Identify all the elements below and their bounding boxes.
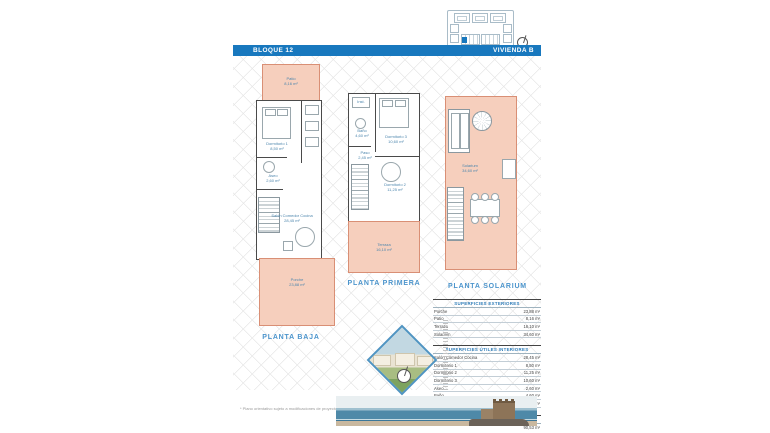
room-label-dormitorio3: Dormitorio 3 10,60 m² xyxy=(381,134,411,144)
chair-icon xyxy=(481,216,489,224)
kitchen-appliance-icon xyxy=(305,105,319,115)
pillow-icon xyxy=(265,109,276,116)
table-row: Dormitorio 310,60 m² xyxy=(433,377,541,385)
floorplan-sheet: BLOQUE 12 VIVIENDA B Patio 8,16 m² Dormi… xyxy=(0,0,770,433)
room-porche: Porche 23,88 m² xyxy=(259,258,335,326)
row-value: 8,50 m² xyxy=(526,363,540,368)
row-label: Porche xyxy=(434,309,447,314)
plan-planta-baja: Patio 8,16 m² Dormitorio 1 8,50 m² Aseo … xyxy=(246,62,336,347)
room-label-porche: Porche 23,88 m² xyxy=(260,277,334,287)
unit-label: VIVIENDA B xyxy=(493,47,541,54)
lounger-area xyxy=(448,109,470,153)
room-area: 8,16 m² xyxy=(263,81,319,86)
keyplan-block xyxy=(490,13,506,23)
kitchen-appliance-icon xyxy=(305,137,319,147)
building-shape xyxy=(373,355,391,366)
kitchen-appliance-icon xyxy=(305,121,319,131)
room-area: 8,50 m² xyxy=(259,146,295,151)
title-bar: BLOQUE 12 VIVIENDA B xyxy=(233,45,541,56)
plan-planta-primera: Inst. Baño 4,60 m² Dormitorio 3 10,60 m²… xyxy=(348,93,420,293)
keyplan-block xyxy=(503,24,512,33)
render-image xyxy=(367,325,438,396)
drawing-stamp xyxy=(443,318,448,390)
room-label-patio: Patio 8,16 m² xyxy=(263,76,319,86)
room-area: 16,10 m² xyxy=(349,247,419,252)
dining-table-icon xyxy=(295,227,315,247)
row-value: 28,45 m² xyxy=(523,355,540,360)
chair-icon xyxy=(471,193,479,201)
room-area: 11,25 m² xyxy=(379,187,411,192)
row-value: 2,60 m² xyxy=(526,386,540,391)
surfaces-interiores-header: SUPERFICIES ÚTILES INTERIORES xyxy=(433,345,541,354)
table-row: Patio8,16 m² xyxy=(433,316,541,324)
plan-title-solarium: PLANTA SOLARIUM xyxy=(440,283,535,290)
render-frame xyxy=(367,325,438,396)
dining-table-icon xyxy=(470,199,500,217)
pillow-icon xyxy=(382,100,393,107)
compass-needle xyxy=(523,35,526,43)
building-shape xyxy=(417,356,433,366)
room-label-inst: Inst. xyxy=(353,99,369,104)
surfaces-exteriores-header: SUPERFICIES EXTERIORES xyxy=(433,299,541,308)
room-name: Inst. xyxy=(353,99,369,104)
site-keyplan xyxy=(447,10,514,47)
room-area: 34,60 m² xyxy=(454,168,486,173)
stairs xyxy=(351,164,369,210)
plan-title-baja: PLANTA BAJA xyxy=(246,334,336,341)
table-row: Terraza16,10 m² xyxy=(433,323,541,331)
keyplan-block xyxy=(503,34,512,43)
keyplan-block-inner xyxy=(493,16,503,21)
room-area: 2,60 m² xyxy=(259,178,287,183)
room-solarium: Solarium 34,60 m² xyxy=(445,96,517,270)
room-area: 23,88 m² xyxy=(260,282,334,287)
lounger-icon xyxy=(460,113,469,149)
room-patio: Patio 8,16 m² xyxy=(262,64,320,102)
sink-icon xyxy=(263,161,275,173)
partition-wall xyxy=(257,157,287,158)
chair-icon xyxy=(491,216,499,224)
partition-wall xyxy=(375,94,376,152)
row-value: 16,10 m² xyxy=(523,324,540,329)
tower-battlements xyxy=(493,399,515,402)
room-label-terraza: Terraza 16,10 m² xyxy=(349,242,419,252)
ac-unit-icon xyxy=(502,159,516,179)
keyplan-block xyxy=(454,13,470,23)
keyplan-highlighted-unit xyxy=(462,37,467,43)
partition-wall xyxy=(349,146,371,147)
plan-planta-solarium: Solarium 34,60 m² PLANTA SOLARIUM xyxy=(440,88,535,293)
lounger-icon xyxy=(451,113,460,149)
keyplan-block-inner xyxy=(475,16,485,21)
table-row: Solarium34,60 m² xyxy=(433,331,541,339)
compass-icon xyxy=(397,369,411,383)
stairs xyxy=(447,187,464,241)
partition-wall xyxy=(301,101,302,163)
bed-icon xyxy=(379,98,409,128)
room-area: 4,60 m² xyxy=(351,133,373,138)
table-icon xyxy=(381,162,401,182)
pillow-icon xyxy=(395,100,406,107)
room-label-dormitorio2: Dormitorio 2 11,25 m² xyxy=(379,182,411,192)
partition-wall xyxy=(257,189,283,190)
block-label: BLOQUE 12 xyxy=(233,47,293,54)
chair-icon xyxy=(481,193,489,201)
keyplan-block xyxy=(450,34,459,43)
room-terraza: Terraza 16,10 m² xyxy=(348,221,420,273)
room-label-aseo: Aseo 2,60 m² xyxy=(259,173,287,183)
unit-outline-primera: Inst. Baño 4,60 m² Dormitorio 3 10,60 m²… xyxy=(348,93,420,223)
spiral-stair-icon xyxy=(472,111,492,131)
keyplan-block xyxy=(450,24,459,33)
row-value: 10,60 m² xyxy=(523,378,540,383)
room-label-solarium: Solarium 34,60 m² xyxy=(454,163,486,173)
building-shape xyxy=(395,353,415,366)
keyplan-block-row xyxy=(481,34,500,45)
room-label-salon: Salón Comedor Cocina 28,45 m² xyxy=(269,213,315,223)
keyplan-block-inner xyxy=(457,16,467,21)
table-row: Dormitorio 211,25 m² xyxy=(433,370,541,378)
row-value: 23,88 m² xyxy=(523,309,540,314)
room-area: 28,45 m² xyxy=(269,218,315,223)
plan-title-primera: PLANTA PRIMERA xyxy=(336,280,432,287)
pillow-icon xyxy=(277,109,288,116)
keyplan-block xyxy=(472,13,488,23)
installations-box: Inst. xyxy=(352,97,370,108)
room-area: 2,45 m² xyxy=(355,155,375,160)
room-label-dormitorio1: Dormitorio 1 8,50 m² xyxy=(259,141,295,151)
room-label-bano: Baño 4,60 m² xyxy=(351,128,373,138)
table-row: Salón Comedor Cocina28,45 m² xyxy=(433,354,541,362)
shore-rocks xyxy=(469,419,529,426)
row-value: 8,16 m² xyxy=(526,316,540,321)
room-label-paso: Paso 2,45 m² xyxy=(355,150,375,160)
row-label: Salón Comedor Cocina xyxy=(434,355,477,360)
unit-outline-baja: Dormitorio 1 8,50 m² Aseo 2,60 m² Salón … xyxy=(256,100,322,260)
footer-disclaimer: * Plano orientativo sujeto a modificacio… xyxy=(240,406,337,411)
table-row: Aseo2,60 m² xyxy=(433,385,541,393)
table-row: Porche23,88 m² xyxy=(433,308,541,316)
chair-icon xyxy=(283,241,293,251)
chair-icon xyxy=(491,193,499,201)
table-row: Dormitorio 18,50 m² xyxy=(433,362,541,370)
row-value: 11,25 m² xyxy=(524,370,540,375)
row-value: 34,60 m² xyxy=(523,332,540,337)
partition-wall xyxy=(375,156,419,157)
chair-icon xyxy=(471,216,479,224)
bed-icon xyxy=(262,107,291,139)
room-area: 10,60 m² xyxy=(381,139,411,144)
beach-photo xyxy=(336,396,537,426)
